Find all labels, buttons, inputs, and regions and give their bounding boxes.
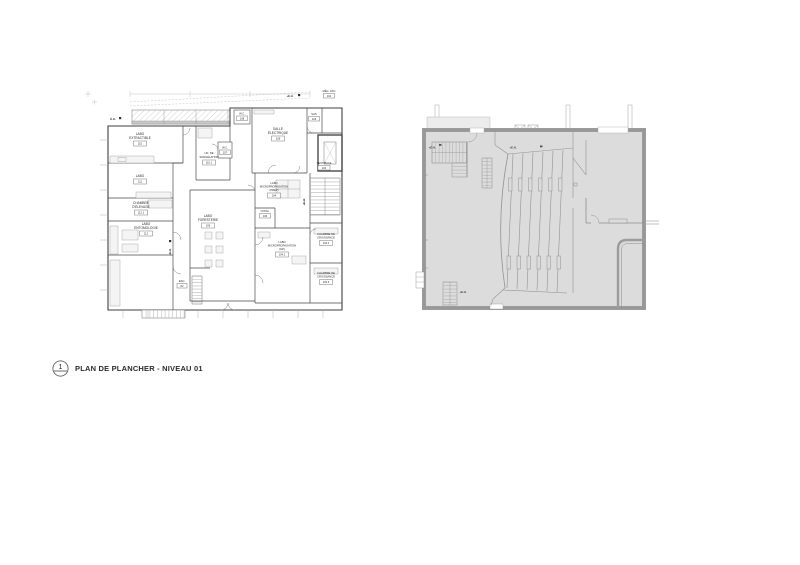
room-label-vestibule: VESTIBULE 102 [317, 161, 332, 170]
room-label-chambre-elevage: CHAMBRE D'ÉLEVAGE 112.1 [132, 201, 150, 215]
left-floor-plan: LABO EXTRACTIBLE 110 LABO 111 CHAMBRE D'… [78, 80, 348, 325]
svg-text:105: 105 [276, 137, 281, 141]
drawing-title: PLAN DE PLANCHER - NIVEAU 01 [75, 364, 203, 373]
room-label-cong: CONG. 106 [260, 209, 271, 218]
svg-text:+E.H.: +E.H. [428, 146, 435, 150]
drawing-title-block: 1 PLAN DE PLANCHER - NIVEAU 01 [52, 360, 203, 377]
svg-text:104.2: 104.2 [323, 241, 330, 245]
door-top-left [470, 128, 484, 133]
svg-text:ESC.: ESC. [179, 279, 186, 283]
svg-text:102: 102 [322, 166, 327, 170]
svg-text:W.C.: W.C. [222, 146, 228, 150]
svg-text:107: 107 [223, 150, 228, 154]
bottom-wall-notch [490, 304, 503, 309]
room-label-mec-asc: MÉC. ASC 101 [323, 88, 336, 98]
right-wall-stub [644, 221, 659, 224]
svg-text:104: 104 [272, 194, 277, 198]
svg-text:108: 108 [240, 116, 245, 120]
svg-text:LABO: LABO [270, 181, 277, 185]
svg-text:W.C.: W.C. [239, 112, 245, 116]
svg-text:112.1: 112.1 [138, 211, 145, 215]
svg-text:EXTRACTIBLE: EXTRACTIBLE [129, 136, 151, 140]
svg-text:CHAMBRE DE: CHAMBRE DE [317, 271, 335, 275]
window-top-right [598, 127, 628, 133]
svg-text:VESTIBULE: VESTIBULE [317, 161, 332, 165]
svg-text:ÉLECTRIQUE: ÉLECTRIQUE [268, 130, 288, 135]
svg-text:LABO: LABO [136, 174, 145, 178]
svg-text:SAS: SAS [311, 112, 317, 116]
svg-text:+E.H.: +E.H. [286, 94, 293, 98]
exterior-stair [142, 310, 185, 318]
svg-text:110: 110 [138, 142, 143, 146]
svg-text:CROISSANCE: CROISSANCE [317, 275, 335, 279]
svg-text:MÉC. ASC: MÉC. ASC [323, 88, 336, 93]
room-label-chambre-croissance-3: CHAMBRE DE CROISSANCE 104.3 [317, 271, 335, 285]
svg-text:FORESTERIE: FORESTERIE [198, 218, 218, 222]
svg-text:MICROPROPAGATION: MICROPROPAGATION [260, 185, 288, 189]
svg-text:LABO: LABO [278, 240, 285, 244]
svg-text:106: 106 [263, 214, 268, 218]
svg-text:CROISSANCE: CROISSANCE [317, 236, 335, 240]
callout-number: 1 [59, 364, 63, 371]
svg-text:D'ÉLEVAGE: D'ÉLEVAGE [132, 204, 150, 209]
svg-text:111: 111 [138, 180, 142, 184]
svg-text:É.H.: É.H. [110, 116, 116, 121]
svg-text:CONG.: CONG. [261, 209, 270, 213]
right-floor-plan: +E.H. +E.H. +E.H. [415, 100, 660, 325]
svg-text:104.1: 104.1 [279, 253, 286, 257]
svg-text:MICROPROPAGATION: MICROPROPAGATION [268, 244, 296, 248]
svg-text:+E.H.: +E.H. [459, 290, 466, 294]
callout-bubble: 1 [52, 360, 69, 377]
svg-text:109: 109 [206, 224, 211, 228]
svg-text:CHAMBRE DE: CHAMBRE DE [317, 232, 335, 236]
svg-text:+E.H.: +E.H. [168, 248, 172, 255]
svg-text:+E.H.: +E.H. [509, 146, 516, 150]
svg-text:+E.H.: +E.H. [302, 198, 306, 205]
left-exterior-panel [416, 272, 424, 288]
svg-text:UN. DE: UN. DE [204, 151, 213, 155]
room-label-chambre-croissance-2: CHAMBRE DE CROISSANCE 104.2 [317, 232, 335, 246]
svg-text:(GP.): (GP.) [279, 247, 285, 251]
svg-text:101: 101 [327, 94, 332, 98]
svg-text:110.1: 110.1 [206, 161, 213, 165]
svg-text:ENTOMOLOGIE: ENTOMOLOGIE [134, 226, 158, 230]
svg-text:104.3: 104.3 [323, 280, 330, 284]
svg-text:(PREP): (PREP) [269, 188, 278, 192]
svg-text:112: 112 [144, 232, 149, 236]
roof-dimension-lines [85, 91, 310, 106]
svg-text:103: 103 [312, 117, 317, 121]
